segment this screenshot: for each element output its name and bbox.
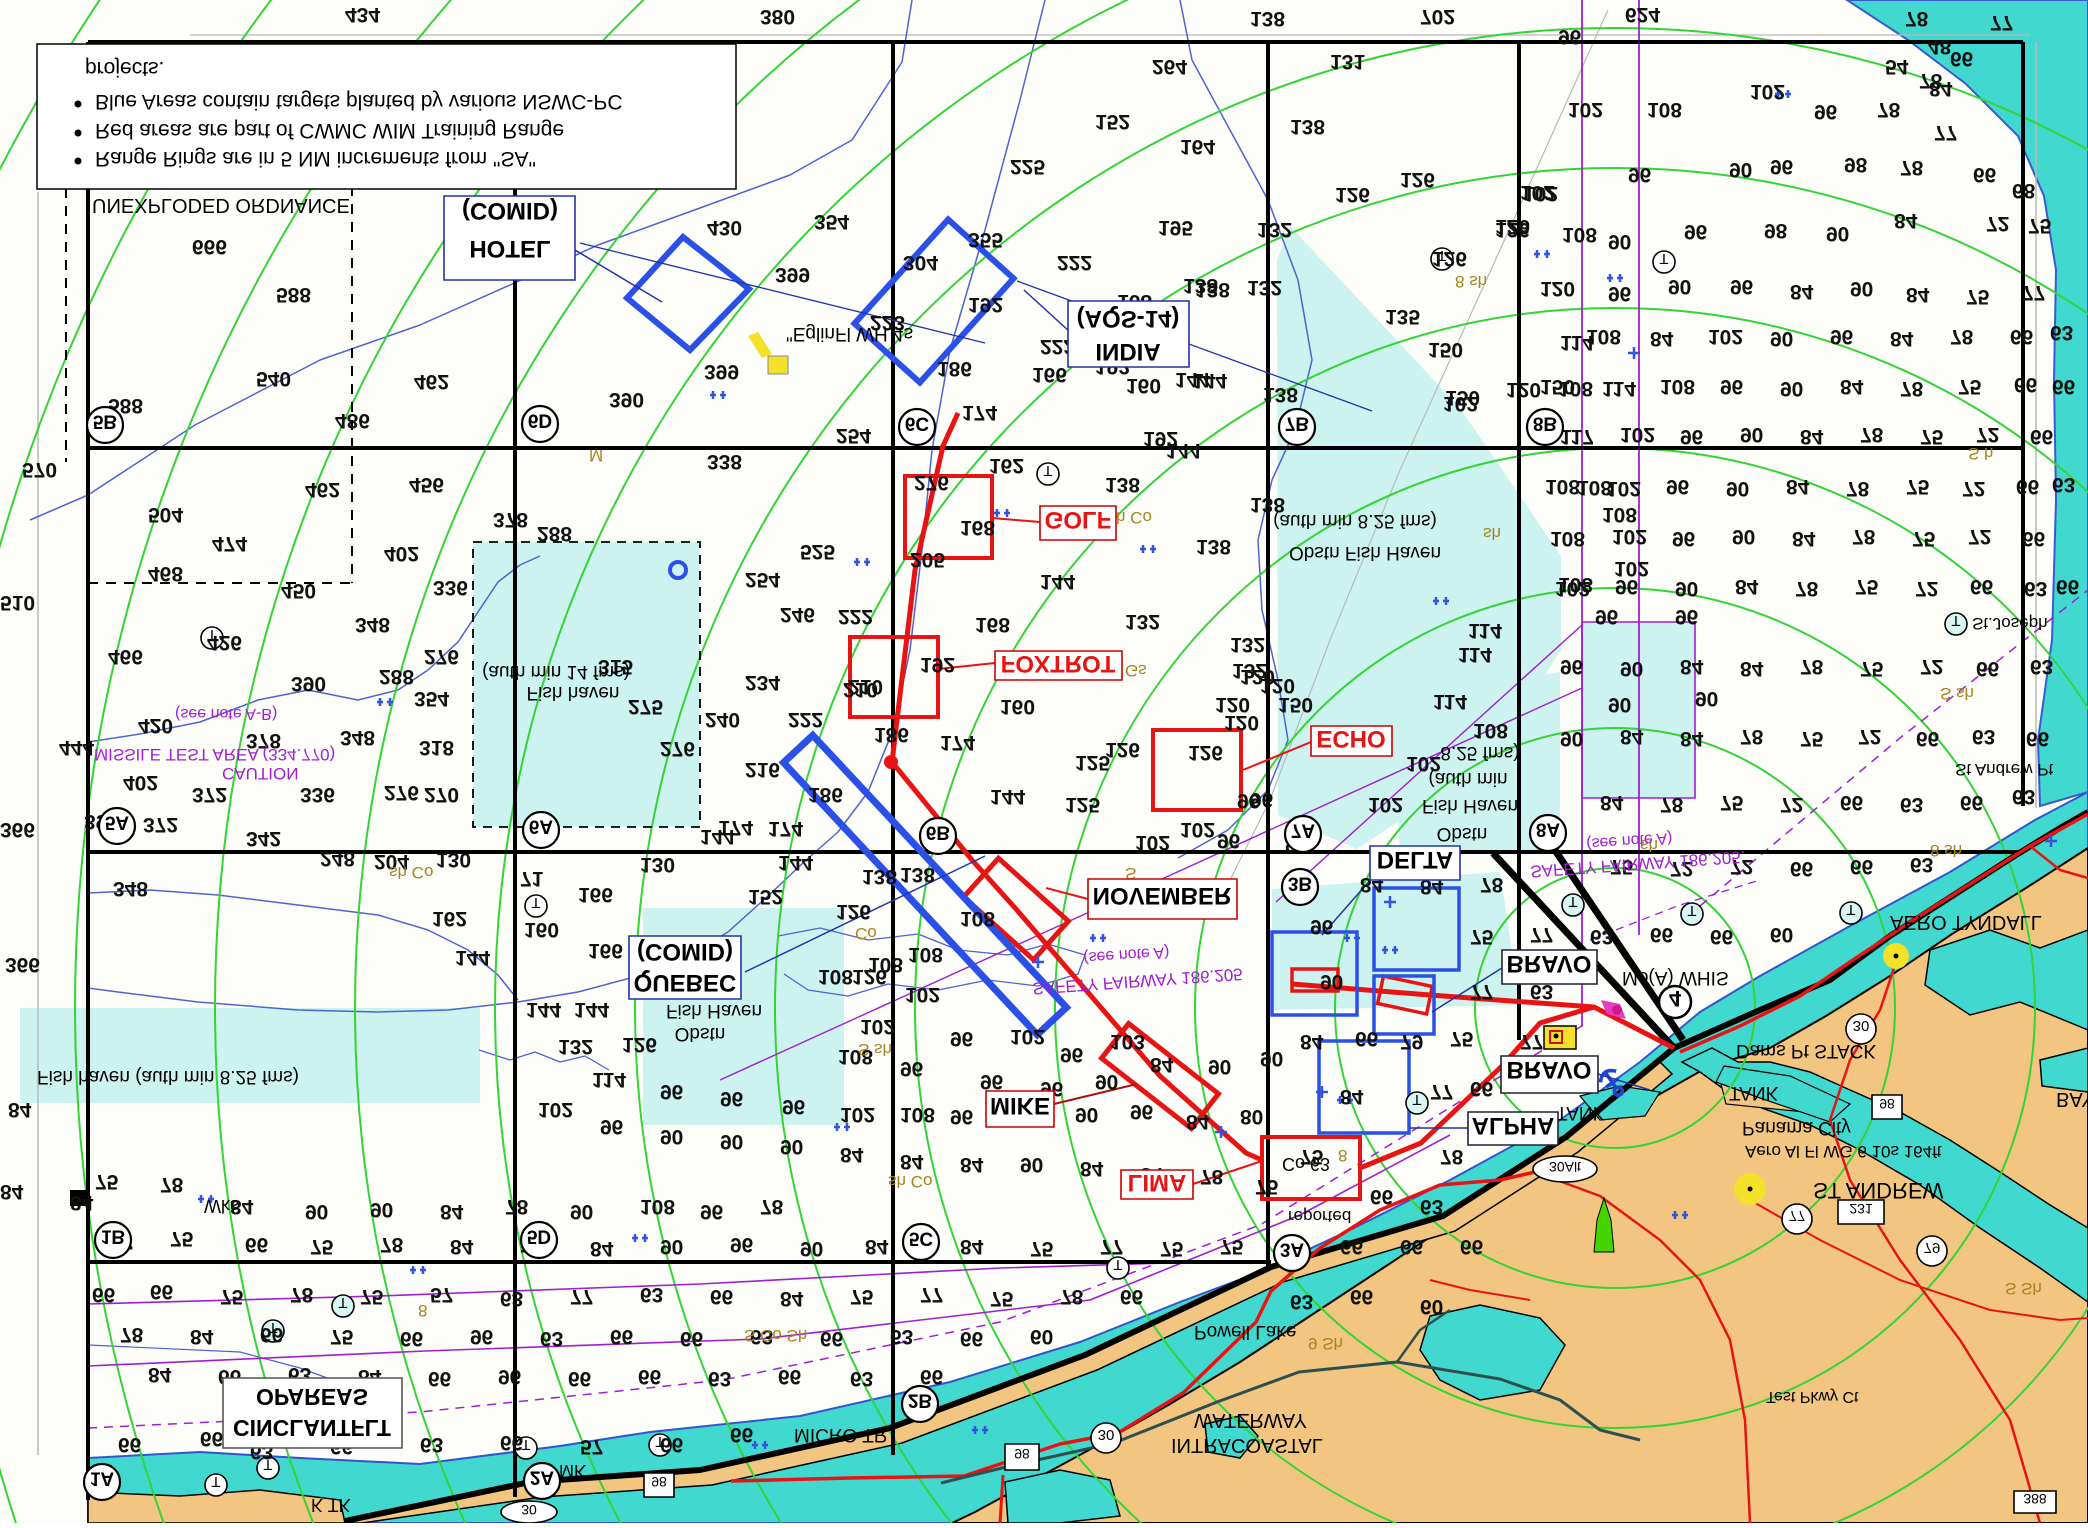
- svg-text:MISSILE TEST AREA (334.770): MISSILE TEST AREA (334.770): [94, 745, 335, 764]
- svg-text:8A: 8A: [1536, 819, 1561, 840]
- svg-text:108: 108: [640, 1195, 675, 1218]
- svg-text:6A: 6A: [529, 816, 554, 837]
- svg-text:S sh: S sh: [858, 1040, 892, 1059]
- svg-text:174: 174: [718, 816, 753, 839]
- svg-text:75: 75: [1720, 791, 1744, 814]
- svg-text:T: T: [211, 1473, 220, 1490]
- svg-text:96: 96: [1680, 425, 1703, 448]
- svg-text:96: 96: [1608, 282, 1631, 305]
- svg-text:150: 150: [1278, 693, 1313, 716]
- svg-text:90: 90: [1732, 525, 1755, 548]
- svg-text:96: 96: [600, 1115, 623, 1138]
- svg-text:66: 66: [2022, 527, 2045, 550]
- svg-text:378: 378: [493, 508, 528, 531]
- svg-text:78: 78: [1900, 377, 1924, 400]
- svg-text:78: 78: [290, 1283, 314, 1306]
- svg-text:66: 66: [2016, 475, 2039, 498]
- svg-text:66: 66: [820, 1327, 843, 1350]
- svg-text:66: 66: [2052, 375, 2075, 398]
- svg-text:30: 30: [1853, 1017, 1870, 1034]
- svg-text:77: 77: [1934, 121, 1957, 144]
- svg-text:160: 160: [1126, 374, 1161, 397]
- svg-text:72: 72: [1968, 525, 1991, 548]
- svg-text:63: 63: [1900, 793, 1923, 816]
- svg-text:108: 108: [960, 907, 995, 930]
- svg-text:84: 84: [70, 1191, 94, 1214]
- svg-text:102: 102: [860, 1015, 895, 1038]
- svg-text:96: 96: [498, 1365, 521, 1388]
- svg-text:(COMID): (COMID): [637, 938, 733, 965]
- svg-text:168: 168: [960, 516, 995, 539]
- svg-text:reported: reported: [1288, 1207, 1351, 1226]
- svg-text:90: 90: [1695, 687, 1718, 710]
- svg-text:126: 126: [1105, 738, 1140, 761]
- svg-text:195: 195: [1158, 216, 1193, 239]
- svg-text:380: 380: [760, 5, 795, 28]
- svg-text:138: 138: [862, 865, 897, 888]
- svg-text:90: 90: [305, 1200, 328, 1223]
- svg-text:186: 186: [937, 357, 972, 380]
- svg-text:Fish haven (auth min 8.25 fms): Fish haven (auth min 8.25 fms): [37, 1066, 299, 1087]
- svg-text:63: 63: [420, 1433, 443, 1456]
- svg-text:96: 96: [950, 1027, 973, 1050]
- svg-text:114: 114: [1602, 377, 1636, 400]
- svg-text:276: 276: [424, 645, 459, 668]
- svg-text:78: 78: [1795, 577, 1819, 600]
- svg-text:66: 66: [1355, 1027, 1378, 1050]
- svg-text:71: 71: [520, 867, 544, 890]
- svg-text:7A: 7A: [1291, 820, 1316, 841]
- svg-text:66: 66: [1470, 1077, 1493, 1100]
- svg-text:102: 102: [538, 1098, 573, 1121]
- svg-text:166: 166: [588, 939, 623, 962]
- svg-text:90: 90: [1726, 477, 1749, 500]
- svg-text:66: 66: [1950, 47, 1973, 70]
- svg-text:84: 84: [1740, 657, 1764, 680]
- svg-text:96: 96: [1666, 475, 1689, 498]
- svg-text:348: 348: [355, 613, 390, 636]
- svg-text:125: 125: [1075, 751, 1110, 774]
- svg-text:66: 66: [568, 1367, 591, 1390]
- svg-text:84: 84: [440, 1200, 464, 1223]
- svg-text:77: 77: [1530, 923, 1553, 946]
- svg-text:63: 63: [2030, 655, 2053, 678]
- svg-text:84: 84: [1650, 327, 1674, 350]
- svg-text:66: 66: [1790, 857, 1813, 880]
- svg-text:390: 390: [291, 672, 326, 695]
- svg-text:234: 234: [745, 671, 780, 694]
- svg-text:77: 77: [1430, 1080, 1453, 1103]
- svg-text:84: 84: [900, 1150, 924, 1173]
- svg-text:FOXTROT: FOXTROT: [1001, 650, 1116, 677]
- svg-text:75: 75: [1220, 1235, 1244, 1258]
- svg-text:338: 338: [707, 450, 742, 473]
- svg-text:84: 84: [1080, 1157, 1104, 1180]
- svg-text:63: 63: [708, 1367, 731, 1390]
- svg-text:90: 90: [1020, 1153, 1043, 1176]
- svg-text:5C: 5C: [909, 1228, 934, 1249]
- svg-text:108: 108: [1660, 375, 1695, 398]
- svg-text:348: 348: [113, 877, 148, 900]
- svg-text:152: 152: [1095, 110, 1130, 133]
- svg-text:90: 90: [720, 1130, 743, 1153]
- svg-text:T: T: [1412, 1091, 1421, 1108]
- svg-text:Obstn Fish Haven: Obstn Fish Haven: [1289, 542, 1441, 563]
- svg-text:75: 75: [1450, 1027, 1474, 1050]
- svg-text:354: 354: [414, 687, 449, 710]
- svg-text:"EglinFl WH 4s: "EglinFl WH 4s: [786, 323, 913, 344]
- svg-text:sh: sh: [1483, 524, 1501, 543]
- svg-text:66: 66: [428, 1367, 451, 1390]
- svg-text:78: 78: [1852, 525, 1876, 548]
- svg-text:60: 60: [1770, 923, 1793, 946]
- svg-text:117: 117: [1560, 425, 1594, 448]
- svg-text:78: 78: [1860, 423, 1884, 446]
- svg-text:84: 84: [148, 1363, 172, 1386]
- svg-text:78: 78: [120, 1323, 144, 1346]
- svg-text:8.25 fms): 8.25 fms): [1440, 742, 1519, 763]
- svg-text:66: 66: [610, 1325, 633, 1348]
- svg-text:90: 90: [1560, 727, 1583, 750]
- svg-text:8B: 8B: [1533, 413, 1557, 434]
- svg-text:96: 96: [782, 1095, 805, 1118]
- svg-text:84: 84: [1680, 727, 1704, 750]
- svg-text:66: 66: [960, 1327, 983, 1350]
- svg-text:144: 144: [526, 998, 561, 1021]
- svg-text:T: T: [1846, 901, 1855, 918]
- svg-text:144: 144: [455, 946, 490, 969]
- svg-text:75: 75: [1800, 727, 1824, 750]
- svg-text:S Sh: S Sh: [2005, 1279, 2042, 1298]
- svg-text:63: 63: [1420, 1195, 1443, 1218]
- svg-text:77: 77: [1100, 1235, 1123, 1258]
- svg-text:84: 84: [1735, 575, 1759, 598]
- svg-text:336: 336: [433, 576, 468, 599]
- svg-text:366: 366: [0, 818, 35, 841]
- svg-text:75: 75: [1920, 425, 1944, 448]
- svg-text:MICRO TR: MICRO TR: [794, 1424, 888, 1445]
- svg-text:75: 75: [1906, 475, 1930, 498]
- svg-text:264: 264: [1152, 55, 1187, 78]
- svg-text:66: 66: [2014, 373, 2037, 396]
- svg-text:126: 126: [1335, 183, 1370, 206]
- svg-text:66: 66: [150, 1280, 173, 1303]
- svg-text:103: 103: [1110, 1030, 1145, 1053]
- svg-text:75: 75: [170, 1227, 194, 1250]
- svg-text:205: 205: [910, 548, 945, 571]
- svg-text:102: 102: [1606, 477, 1641, 500]
- svg-text:78: 78: [1900, 156, 1924, 179]
- svg-text:240: 240: [705, 708, 740, 731]
- svg-text:98: 98: [1844, 153, 1868, 176]
- svg-text:126: 126: [1400, 168, 1435, 191]
- svg-text:84: 84: [8, 1098, 32, 1121]
- svg-text:MIKE: MIKE: [990, 1092, 1050, 1119]
- svg-text:72: 72: [1962, 477, 1985, 500]
- svg-text:186: 186: [808, 783, 843, 806]
- svg-text:420: 420: [138, 714, 173, 737]
- svg-text:96: 96: [980, 1070, 1003, 1093]
- svg-text:90: 90: [1320, 970, 1343, 993]
- svg-text:5D: 5D: [527, 1226, 551, 1247]
- svg-text:108: 108: [1545, 475, 1580, 498]
- svg-text:78: 78: [1480, 873, 1504, 896]
- svg-text:144: 144: [1175, 368, 1210, 391]
- svg-text:468: 468: [148, 562, 183, 585]
- svg-text:3B: 3B: [1288, 873, 1312, 894]
- svg-text:66: 66: [1840, 791, 1863, 814]
- svg-text:2B: 2B: [908, 1390, 932, 1411]
- svg-text:T: T: [531, 894, 540, 911]
- svg-text:466: 466: [108, 645, 143, 668]
- svg-text:M: M: [589, 446, 603, 465]
- svg-text:77: 77: [920, 1283, 943, 1306]
- svg-text:130: 130: [436, 848, 471, 871]
- svg-text:108: 108: [1647, 98, 1682, 121]
- svg-text:4: 4: [1669, 986, 1682, 1011]
- svg-text:Red areas are part of CWMC WIM: Red areas are part of CWMC WIM Training …: [95, 119, 564, 142]
- svg-text:164: 164: [1180, 135, 1215, 158]
- svg-text:66: 66: [260, 1323, 283, 1346]
- svg-text:84: 84: [960, 1153, 984, 1176]
- svg-text:90: 90: [1608, 693, 1631, 716]
- svg-text:84: 84: [1790, 280, 1814, 303]
- svg-text:96: 96: [1217, 829, 1240, 852]
- svg-text:BRAVO: BRAVO: [1507, 1056, 1592, 1083]
- svg-text:450: 450: [281, 579, 316, 602]
- svg-text:78: 78: [1846, 477, 1870, 500]
- svg-text:30Alt: 30Alt: [1549, 1159, 1581, 1175]
- svg-text:Fish Haven: Fish Haven: [1422, 795, 1518, 816]
- svg-text:254: 254: [836, 424, 871, 447]
- svg-text:84: 84: [1792, 527, 1816, 550]
- svg-text:St Andrew Pt: St Andrew Pt: [1955, 760, 2054, 779]
- svg-text:90: 90: [1850, 277, 1873, 300]
- svg-text:102: 102: [1368, 793, 1403, 816]
- svg-text:Aero Al Fl WG 6 10s 164ft: Aero Al Fl WG 6 10s 164ft: [1745, 1142, 1942, 1161]
- svg-text:90: 90: [1729, 158, 1752, 181]
- svg-text:304: 304: [903, 251, 938, 274]
- svg-text:96: 96: [1628, 163, 1651, 186]
- svg-text:66: 66: [730, 1423, 753, 1446]
- svg-text:66: 66: [400, 1327, 423, 1350]
- svg-text:78: 78: [1440, 1145, 1464, 1168]
- svg-text:108: 108: [1473, 719, 1508, 742]
- svg-text:462: 462: [414, 370, 449, 393]
- svg-text:Fish haven: Fish haven: [527, 682, 620, 703]
- svg-text:102: 102: [1135, 831, 1170, 854]
- svg-text:248: 248: [320, 847, 355, 870]
- svg-text:222: 222: [838, 605, 873, 628]
- svg-text:84: 84: [1800, 425, 1824, 448]
- svg-text:624: 624: [1625, 3, 1660, 26]
- svg-text:72: 72: [1986, 212, 2009, 235]
- svg-text:540: 540: [256, 367, 291, 390]
- svg-text:60: 60: [1420, 1295, 1443, 1318]
- svg-text:5A: 5A: [105, 812, 130, 833]
- svg-text:90: 90: [1608, 230, 1631, 253]
- svg-text:336: 336: [300, 783, 335, 806]
- svg-text:66: 66: [680, 1327, 703, 1350]
- svg-text:75: 75: [1966, 285, 1990, 308]
- svg-text:66: 66: [2010, 325, 2033, 348]
- svg-text:474: 474: [212, 532, 247, 555]
- svg-text:144: 144: [990, 785, 1025, 808]
- svg-text:AERO TYNDALL: AERO TYNDALL: [1890, 911, 2042, 933]
- svg-text:96: 96: [660, 1080, 683, 1103]
- svg-text:246: 246: [780, 603, 815, 626]
- svg-text:126: 126: [622, 1033, 657, 1056]
- svg-text:ALPHA: ALPHA: [1472, 1112, 1555, 1139]
- svg-text:8 sh: 8 sh: [1455, 272, 1487, 291]
- svg-text:114: 114: [1433, 690, 1467, 713]
- svg-text:S Co Sh: S Co Sh: [744, 1326, 807, 1345]
- svg-text:102: 102: [1620, 423, 1655, 446]
- svg-text:h Co: h Co: [1116, 508, 1152, 527]
- svg-text:(auth min 8.25 fms): (auth min 8.25 fms): [1273, 510, 1437, 531]
- svg-text:96: 96: [1595, 605, 1618, 628]
- svg-text:K TK: K TK: [311, 1495, 351, 1515]
- svg-text:BRAVO: BRAVO: [1507, 950, 1592, 977]
- svg-text:77: 77: [1470, 980, 1493, 1003]
- svg-text:588: 588: [276, 283, 311, 306]
- svg-text:75: 75: [310, 1235, 334, 1258]
- svg-text:96: 96: [1558, 25, 1581, 48]
- svg-text:270: 270: [424, 783, 459, 806]
- svg-text:Co: Co: [855, 924, 877, 943]
- svg-text:66: 66: [1850, 855, 1873, 878]
- svg-text:102: 102: [1750, 80, 1785, 103]
- svg-text:Mo(A) WHIS: Mo(A) WHIS: [1622, 967, 1729, 988]
- svg-text:456: 456: [409, 473, 444, 496]
- svg-text:96: 96: [1770, 155, 1793, 178]
- svg-text:132: 132: [1125, 610, 1160, 633]
- svg-text:90: 90: [370, 1198, 393, 1221]
- svg-text:63: 63: [1972, 725, 1995, 748]
- svg-text:390: 390: [609, 388, 644, 411]
- svg-text:30: 30: [1098, 1426, 1115, 1443]
- svg-text:72: 72: [1858, 725, 1881, 748]
- svg-text:132: 132: [1247, 276, 1282, 299]
- svg-text:TANK: TANK: [1556, 1102, 1606, 1123]
- svg-text:430: 430: [707, 216, 742, 239]
- svg-text:90: 90: [1675, 577, 1698, 600]
- svg-text:75: 75: [1030, 1237, 1054, 1260]
- svg-text:78: 78: [1950, 325, 1974, 348]
- svg-text:96: 96: [1237, 789, 1260, 812]
- svg-text:9 Sh: 9 Sh: [1308, 1334, 1343, 1353]
- svg-text:78: 78: [1740, 725, 1764, 748]
- svg-text:WATERWAY: WATERWAY: [1194, 1409, 1307, 1431]
- svg-text:Panama City: Panama City: [1742, 1117, 1851, 1138]
- svg-text:66: 66: [2026, 727, 2049, 750]
- svg-text:120: 120: [1224, 711, 1259, 734]
- svg-text:75: 75: [1958, 375, 1982, 398]
- svg-text:6B: 6B: [926, 822, 950, 843]
- svg-text:276: 276: [384, 781, 419, 804]
- svg-text:84: 84: [780, 1287, 804, 1310]
- svg-text:174: 174: [768, 817, 803, 840]
- svg-text:S sh: S sh: [1940, 684, 1974, 703]
- svg-text:63: 63: [540, 1327, 563, 1350]
- svg-text:75: 75: [990, 1287, 1014, 1310]
- svg-text:78: 78: [160, 1173, 184, 1196]
- svg-text:160: 160: [1000, 695, 1035, 718]
- svg-text:66: 66: [1400, 1235, 1423, 1258]
- svg-text:96: 96: [1675, 605, 1698, 628]
- svg-text:66: 66: [2030, 425, 2053, 448]
- svg-text:Obstn: Obstn: [675, 1023, 726, 1044]
- svg-text:96: 96: [1684, 220, 1707, 243]
- svg-text:1A: 1A: [90, 1468, 115, 1489]
- svg-text:98: 98: [651, 1474, 667, 1490]
- svg-text:98: 98: [1764, 219, 1788, 242]
- svg-text:84: 84: [1840, 375, 1864, 398]
- svg-text:54: 54: [1885, 55, 1909, 78]
- svg-text:63: 63: [890, 1325, 913, 1348]
- svg-text:48: 48: [1928, 35, 1952, 58]
- svg-text:DELTA: DELTA: [1377, 846, 1453, 873]
- svg-text:84: 84: [450, 1235, 474, 1258]
- svg-text:144: 144: [1166, 439, 1201, 462]
- svg-text:sh Co: sh Co: [389, 863, 433, 882]
- svg-text:GOLF: GOLF: [1045, 506, 1112, 533]
- svg-text:96: 96: [470, 1325, 493, 1348]
- svg-text:354: 354: [814, 210, 849, 233]
- svg-text:90: 90: [660, 1125, 683, 1148]
- svg-text:90: 90: [1260, 1047, 1283, 1070]
- svg-text:75: 75: [1160, 1237, 1184, 1260]
- svg-text:96: 96: [1672, 527, 1695, 550]
- svg-text:210: 210: [843, 678, 878, 701]
- svg-text:60: 60: [1030, 1325, 1053, 1348]
- svg-text:Range Rings are in 5 NM increm: Range Rings are in 5 NM increments from …: [95, 147, 536, 170]
- svg-text:102: 102: [1443, 392, 1478, 415]
- svg-text:63: 63: [2012, 785, 2035, 808]
- svg-text:96: 96: [720, 1087, 743, 1110]
- svg-text:5B: 5B: [93, 411, 117, 432]
- svg-text:Test Pkwy Ct: Test Pkwy Ct: [1766, 1388, 1859, 1405]
- svg-text:NOVEMBER: NOVEMBER: [1093, 882, 1232, 909]
- svg-text:UNEXPLODED ORDNANCE: UNEXPLODED ORDNANCE: [92, 194, 350, 216]
- svg-text:T: T: [1568, 893, 1577, 910]
- svg-text:90: 90: [1780, 377, 1803, 400]
- svg-text:72: 72: [1976, 423, 1999, 446]
- svg-text:84: 84: [1620, 725, 1644, 748]
- svg-text:78: 78: [1877, 98, 1901, 121]
- svg-text:75: 75: [2028, 214, 2052, 237]
- svg-text:(auth min: (auth min: [1428, 768, 1507, 789]
- svg-text:T: T: [1043, 462, 1052, 479]
- svg-text:108: 108: [908, 943, 943, 966]
- svg-text:90: 90: [780, 1135, 803, 1158]
- svg-text:114: 114: [592, 1068, 626, 1091]
- svg-text:84: 84: [865, 1235, 889, 1258]
- svg-text:186: 186: [874, 723, 909, 746]
- svg-text:84: 84: [1150, 1053, 1174, 1076]
- svg-text:84: 84: [1890, 327, 1914, 350]
- svg-text:666: 666: [192, 235, 227, 258]
- svg-text:108: 108: [1602, 503, 1637, 526]
- svg-text:T: T: [1687, 902, 1696, 919]
- svg-text:75: 75: [220, 1285, 244, 1308]
- svg-text:144: 144: [778, 851, 813, 874]
- svg-text:90: 90: [1668, 275, 1691, 298]
- svg-text:66: 66: [245, 1233, 268, 1256]
- svg-text:66: 66: [1970, 575, 1993, 598]
- svg-text:426: 426: [207, 631, 242, 654]
- svg-text:77: 77: [1520, 1030, 1543, 1053]
